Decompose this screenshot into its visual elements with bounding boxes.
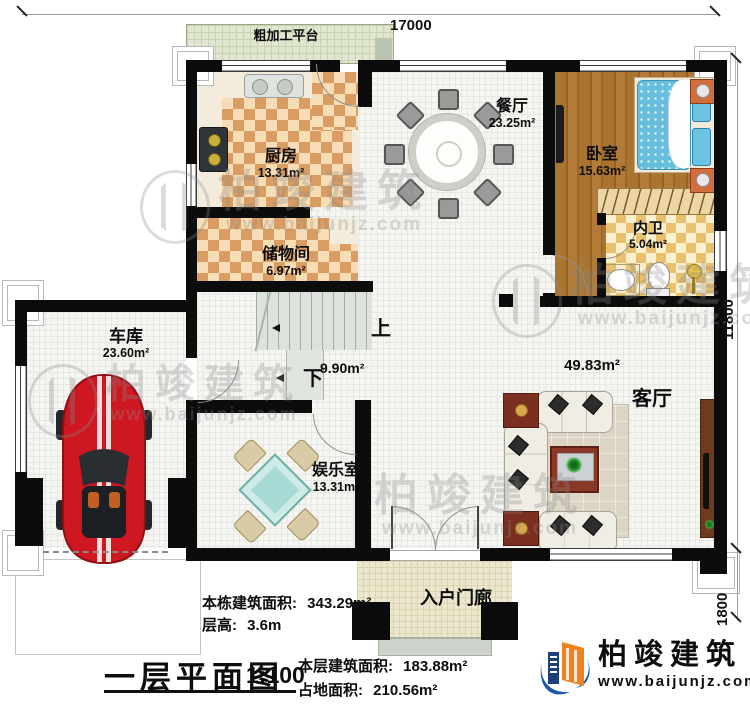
floor-height-value: 3.6m — [247, 617, 281, 634]
sink-basin — [252, 79, 268, 95]
living-area: 49.83m² — [552, 358, 632, 375]
bed-sheet — [668, 80, 690, 168]
dining-chair — [438, 198, 459, 219]
kitchen-name: 厨房 — [241, 148, 321, 166]
bath-name: 内卫 — [612, 221, 684, 238]
title-underline — [104, 690, 296, 693]
window — [400, 60, 506, 72]
wall — [480, 548, 550, 561]
floor-area-line: 本层建筑面积: 183.88m² — [298, 655, 467, 676]
nightstand — [690, 168, 716, 193]
kitchen-label: 厨房 13.31m² — [241, 148, 321, 180]
dining-chair — [438, 89, 459, 110]
dimension-top-label: 17000 — [390, 17, 432, 34]
tv — [703, 453, 709, 509]
footprint-label: 占地面积: — [298, 682, 363, 699]
dining-label: 餐厅 23.25m² — [476, 98, 548, 130]
dimension-line-top — [22, 14, 717, 15]
building-area-label: 本栋建筑面积: — [202, 595, 297, 612]
sofa-bottom — [539, 511, 617, 553]
building-area-value: 343.29m² — [307, 595, 371, 612]
wall — [358, 60, 372, 107]
wall — [372, 60, 400, 72]
brand-name: 柏竣建筑 — [598, 641, 750, 670]
window — [15, 366, 27, 472]
bath-sink — [602, 264, 640, 296]
dimension-right-lower-label: 1800 — [714, 564, 731, 626]
car-seat — [109, 492, 120, 508]
dining-name: 餐厅 — [476, 98, 548, 116]
nightstand — [690, 79, 716, 104]
stairs-up: 上 — [371, 318, 391, 340]
window — [550, 548, 672, 561]
dining-area: 23.25m² — [476, 116, 548, 130]
garage-area: 23.60m² — [86, 346, 166, 360]
dining-table-center — [436, 141, 462, 167]
sink-basin — [277, 79, 293, 95]
burner — [208, 153, 221, 166]
wall — [597, 258, 606, 296]
wall — [186, 548, 390, 561]
floor-height-label: 层高: — [202, 617, 237, 634]
living-name-label: 客厅 — [622, 388, 682, 410]
wall — [543, 60, 555, 255]
lamp — [515, 522, 528, 535]
stairs-down: 下 — [303, 368, 323, 390]
floor-plan: 17000 11800 1800 — [0, 0, 750, 706]
bed-pillow — [692, 128, 711, 166]
coffee-table — [550, 446, 599, 493]
dining-chair — [493, 144, 514, 165]
floor-area-label: 本层建筑面积: — [298, 658, 393, 675]
garage-door-dashed-line — [43, 551, 168, 553]
stairs-up-label: 上 — [368, 318, 394, 340]
scale-value: 1:100 — [246, 662, 305, 688]
kitchen-sink — [244, 74, 304, 98]
window — [580, 60, 686, 72]
entry-door-leaf — [477, 506, 479, 549]
entertainment-name: 娱乐室 — [298, 462, 374, 480]
bath-label: 内卫 5.04m² — [612, 221, 684, 251]
bedroom-area: 15.63m² — [562, 164, 642, 178]
floor-area-value: 183.88m² — [403, 658, 467, 675]
sink-bowl — [607, 269, 635, 291]
storage-area: 6.97m² — [246, 264, 326, 278]
lamp — [696, 173, 710, 187]
wall — [597, 213, 606, 225]
window — [186, 164, 197, 206]
wall — [15, 300, 187, 312]
wall — [186, 207, 310, 218]
wall — [186, 281, 373, 292]
scale-label: 1:100 — [246, 662, 305, 689]
lamp — [696, 84, 710, 98]
dimension-tick — [730, 611, 741, 622]
wall — [15, 478, 43, 546]
floor-height-line: 层高: 3.6m — [202, 614, 281, 635]
stairs-flight — [256, 292, 372, 350]
footprint-value: 210.56m² — [373, 682, 437, 699]
toilet-bowl — [648, 262, 670, 290]
floor-lamp-stem — [692, 277, 695, 294]
brand-logo: 柏竣建筑 www.baijunjz.com — [536, 634, 750, 696]
building-area-line: 本栋建筑面积: 343.29m² — [202, 592, 371, 613]
porch-label: 入户门廊 — [396, 588, 516, 608]
bedroom-label: 卧室 15.63m² — [562, 146, 642, 178]
storage-name: 储物间 — [246, 246, 326, 264]
platform-label-text: 粗加工平台 — [253, 28, 318, 43]
storage-label: 储物间 6.97m² — [246, 246, 326, 278]
entertainment-label: 娱乐室 13.31m² — [298, 462, 374, 494]
plant — [565, 456, 583, 474]
entertainment-area: 13.31m² — [298, 480, 374, 494]
brand-logo-icon — [536, 634, 590, 696]
platform-edge — [375, 38, 392, 62]
plant-small — [705, 520, 714, 529]
sofa-top — [537, 391, 613, 433]
stairs-arrow — [276, 374, 284, 382]
footprint-line: 占地面积: 210.56m² — [298, 679, 437, 700]
stairs-area: 9.90m² — [320, 360, 364, 376]
stairs-area-label: 9.90m² — [320, 360, 390, 378]
stairs-down-label: 下 — [300, 368, 326, 390]
dining-chair — [384, 144, 405, 165]
bedroom-name: 卧室 — [562, 146, 642, 164]
storage-corner — [330, 218, 358, 244]
porch-steps — [378, 637, 492, 656]
stairs-arrow — [272, 324, 280, 332]
burner — [208, 134, 221, 147]
wall — [186, 292, 197, 358]
dimension-right-upper-label: 11800 — [720, 264, 737, 340]
toilet — [645, 262, 671, 298]
garage-name: 车库 — [86, 327, 166, 346]
window — [222, 60, 310, 72]
porch-name: 入户门廊 — [420, 588, 492, 608]
bath-area: 5.04m² — [612, 238, 684, 251]
kitchen-area: 13.31m² — [241, 166, 321, 180]
wall — [168, 478, 197, 548]
sofa-left — [504, 423, 548, 517]
side-table — [503, 511, 539, 546]
platform-label: 粗加工平台 — [238, 29, 334, 44]
stove — [199, 127, 228, 172]
car — [54, 372, 154, 566]
door-threshold — [390, 550, 480, 561]
living-area-label: 49.83m² — [552, 358, 632, 375]
dimension-line-right — [737, 61, 738, 621]
car-windshield — [79, 449, 129, 486]
lamp — [515, 404, 528, 417]
brand-url: www.baijunjz.com — [598, 673, 750, 690]
wall — [540, 296, 727, 307]
pillar — [499, 294, 513, 307]
side-table — [503, 393, 539, 428]
car-seat — [88, 492, 99, 508]
living-name: 客厅 — [632, 388, 672, 410]
garage-label: 车库 23.60m² — [86, 327, 166, 360]
entry-door-leaf — [391, 506, 393, 549]
